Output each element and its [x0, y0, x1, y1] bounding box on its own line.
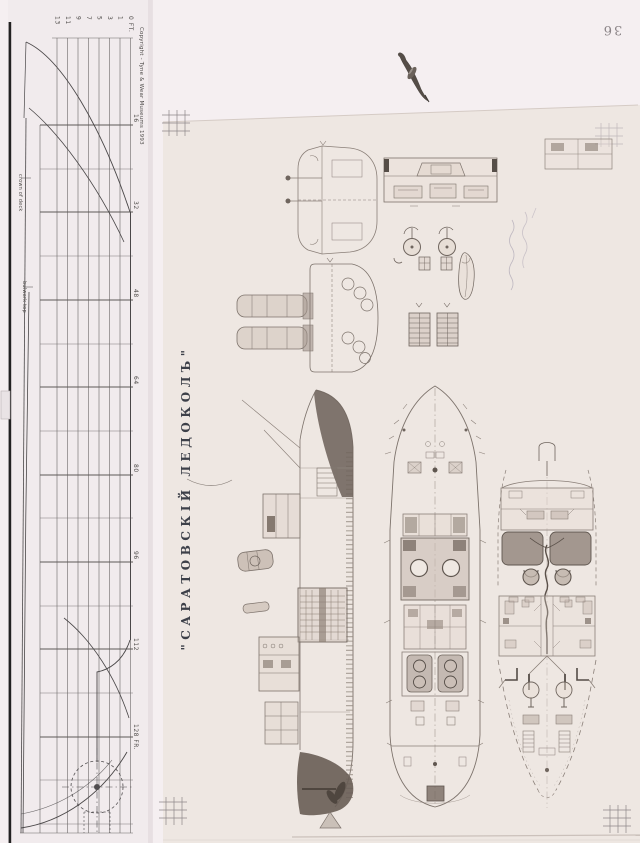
- uptake-circle-1: [523, 569, 539, 585]
- capstan-2-center: [446, 246, 449, 249]
- waterline-label-13: 13: [54, 16, 61, 46]
- uptake-circle-2: [555, 569, 571, 585]
- frame-label-112: 112: [132, 638, 139, 674]
- copyright-notice: Copyright - Tyne & Wear Museums 1993: [138, 27, 144, 157]
- funnel-2: [237, 327, 307, 349]
- frame-label-64: 64: [132, 376, 139, 412]
- strip-left-tab: [1, 391, 10, 419]
- drawing-title: "САРАТОВСКІЙ ЛЕДОКОЛЪ": [168, 330, 204, 666]
- bridge-wing-left: [384, 159, 389, 172]
- page-artwork: [0, 0, 640, 843]
- frame-label-80: 80: [132, 464, 139, 500]
- waterline-label-11: 11: [64, 16, 71, 46]
- scanned-book-page: 13 11 9 7 5 3 1 0 FT. 16 32 48 64 80 96 …: [0, 0, 640, 843]
- funnel-circle-2: [443, 560, 460, 577]
- funnel-profile-body: [237, 549, 274, 572]
- bulwark-top-label: bulwark top: [21, 281, 27, 327]
- mast-truck-1: [286, 176, 291, 181]
- foremast-spot: [433, 468, 438, 473]
- bridge-deck-plan-fragment: [384, 158, 497, 206]
- main-sheet: [159, 105, 640, 843]
- capstan-1-center: [411, 246, 414, 249]
- funnel-base-2: [303, 325, 313, 351]
- strip-left-border: [9, 22, 12, 843]
- aft-house-window-2: [281, 660, 291, 668]
- aft-house-window-1: [263, 660, 273, 668]
- round-fitting-1: [523, 682, 539, 698]
- round-fitting-2: [556, 682, 572, 698]
- funnel-circle-1: [411, 560, 428, 577]
- lines-plan-strip: [1, 0, 153, 843]
- frame-label-96: 96: [132, 551, 139, 587]
- deck-plan-fragment-top-right: [545, 139, 612, 169]
- waterline-label-3: 3: [106, 16, 113, 46]
- strip-edge-shadow: [148, 0, 153, 843]
- sheet-paper: [163, 105, 640, 843]
- boiler-left: [502, 532, 543, 565]
- stern-hatch: [427, 786, 444, 801]
- waterline-label-1: 1: [117, 16, 124, 46]
- boiler-right: [550, 532, 591, 565]
- waterline-label-0ft: 0 FT.: [127, 16, 134, 46]
- bridge-houses: [394, 184, 488, 198]
- mast-truck-2: [286, 199, 291, 204]
- waterline-label-9: 9: [75, 16, 82, 46]
- fore-deckhouse-door: [267, 516, 275, 532]
- frame-label-128fr: 128 FR.: [132, 724, 139, 760]
- frame-label-32: 32: [132, 201, 139, 237]
- drawing-title-wrap: "САРАТОВСКІЙ ЛЕДОКОЛЪ": [168, 330, 204, 666]
- profile-funnel: [237, 549, 274, 572]
- page-number: 36: [597, 20, 627, 38]
- foremast-spot-lower: [545, 768, 549, 772]
- pen-nib-artifact: [398, 53, 429, 102]
- funnel-base-1: [303, 293, 313, 319]
- funnel-1: [237, 295, 307, 317]
- waterline-label-7: 7: [85, 16, 92, 46]
- frame-label-48: 48: [132, 289, 139, 325]
- poop-deckhouse: [265, 702, 298, 744]
- waterline-label-5: 5: [96, 16, 103, 46]
- mizzen-spot: [433, 762, 437, 766]
- bridge-wing-right: [492, 159, 497, 172]
- crown-of-deck-label: crown of deck: [17, 174, 23, 226]
- pen-nib-body: [398, 53, 428, 101]
